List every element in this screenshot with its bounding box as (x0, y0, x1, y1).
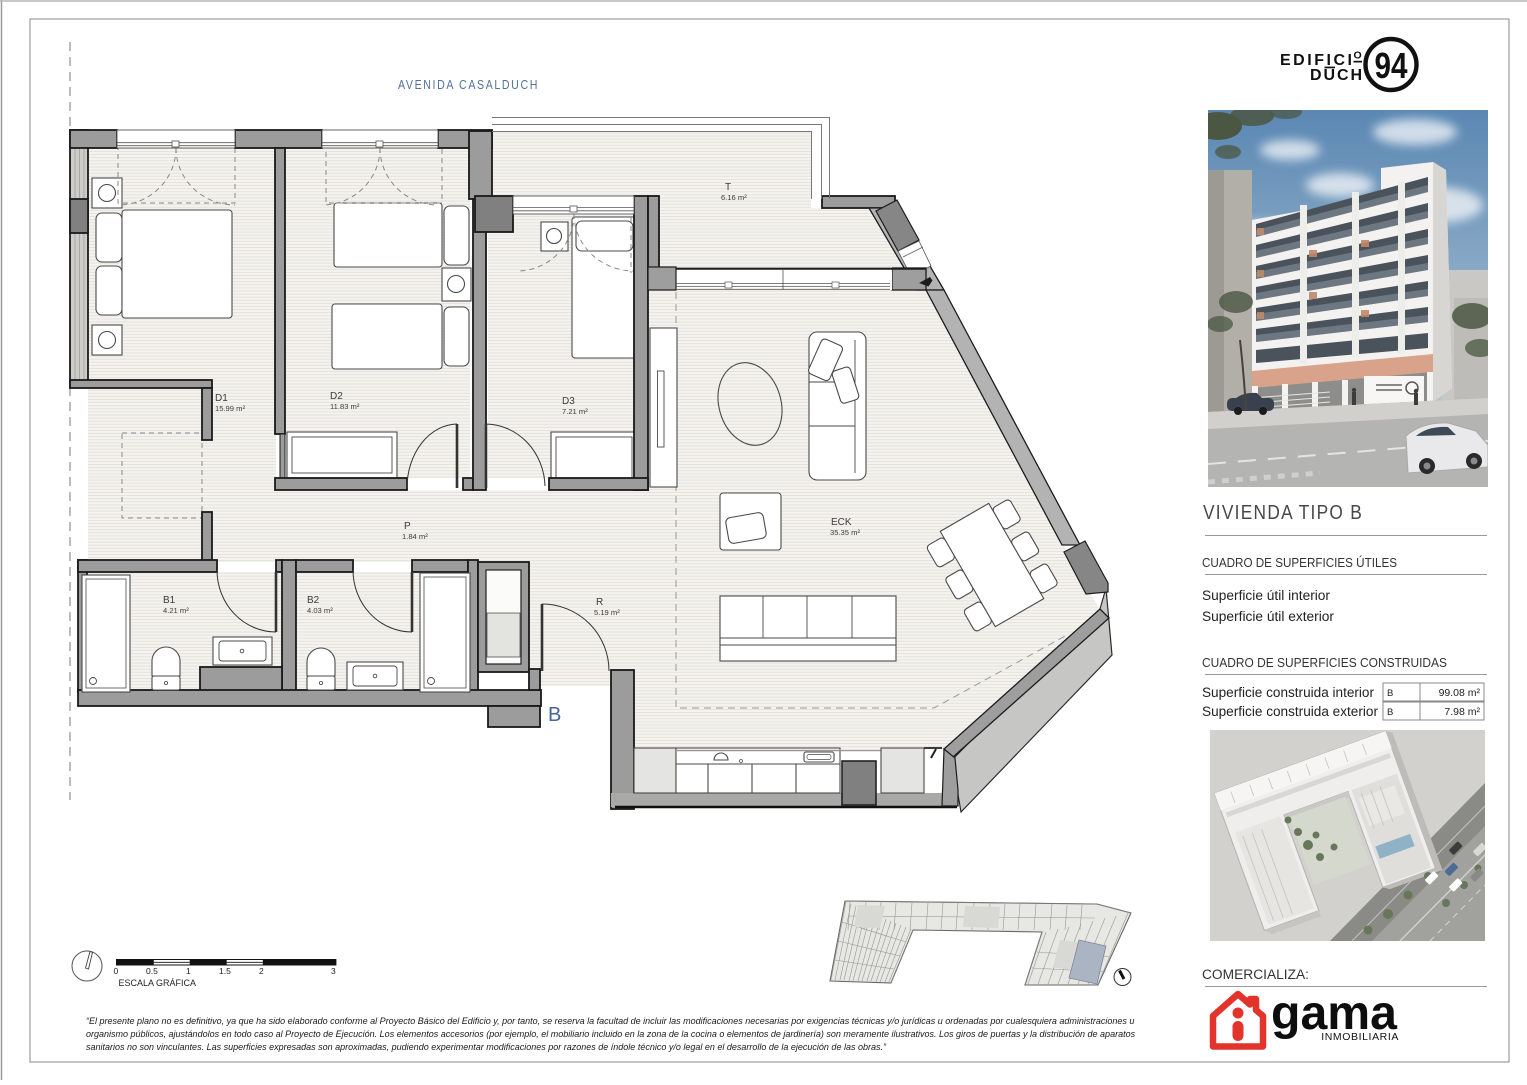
svg-text:INMOBILIARIA: INMOBILIARIA (1321, 1031, 1399, 1043)
svg-text:Superficie construida exterior: Superficie construida exterior (1202, 704, 1378, 719)
svg-text:11.83 m²: 11.83 m² (330, 402, 360, 411)
svg-text:B: B (548, 704, 561, 726)
svg-text:94: 94 (1375, 45, 1408, 86)
svg-text:7.21 m²: 7.21 m² (562, 407, 588, 416)
svg-text:Superficie construida interior: Superficie construida interior (1202, 685, 1374, 700)
svg-text:1.84 m²: 1.84 m² (402, 532, 428, 541)
svg-text:VIVIENDA TIPO B: VIVIENDA TIPO B (1203, 501, 1363, 524)
svg-text:1.5: 1.5 (219, 966, 231, 976)
svg-text:B2: B2 (307, 595, 320, 606)
svg-text:B1: B1 (163, 595, 176, 606)
svg-text:ESCALA GRÁFICA: ESCALA GRÁFICA (119, 978, 197, 988)
svg-text:15.99 m²: 15.99 m² (215, 404, 245, 413)
svg-text:CUADRO DE SUPERFICIES CONSTRUI: CUADRO DE SUPERFICIES CONSTRUIDAS (1202, 655, 1447, 670)
svg-text:CUADRO DE SUPERFICIES ÚTILES: CUADRO DE SUPERFICIES ÚTILES (1202, 555, 1397, 570)
svg-text:“El presente plano no es defin: “El presente plano no es definitivo, ya … (86, 1016, 1134, 1026)
svg-text:4.03 m²: 4.03 m² (307, 606, 333, 615)
svg-text:O: O (1354, 50, 1362, 62)
svg-text:3: 3 (331, 966, 336, 976)
svg-text:P: P (404, 521, 411, 532)
svg-text:AVENIDA CASALDUCH: AVENIDA CASALDUCH (398, 78, 539, 92)
svg-text:1: 1 (186, 966, 191, 976)
svg-text:0.5: 0.5 (146, 966, 158, 976)
svg-text:Superficie útil interior: Superficie útil interior (1202, 588, 1331, 603)
svg-text:R: R (596, 597, 603, 608)
svg-text:COMERCIALIZA:: COMERCIALIZA: (1202, 967, 1309, 982)
svg-text:4.21 m²: 4.21 m² (163, 606, 189, 615)
svg-text:0: 0 (114, 966, 119, 976)
svg-text:T: T (725, 182, 731, 193)
svg-text:D2: D2 (330, 391, 343, 402)
svg-text:organismo públicos, ajustándol: organismo públicos, ajustándolos en todo… (86, 1029, 1136, 1039)
svg-text:2: 2 (259, 966, 264, 976)
svg-text:7.98 m²: 7.98 m² (1444, 706, 1480, 718)
svg-text:5.19 m²: 5.19 m² (594, 608, 620, 617)
svg-text:ECK: ECK (831, 517, 852, 528)
svg-text:35.35 m²: 35.35 m² (830, 528, 860, 537)
svg-text:6.16 m²: 6.16 m² (721, 193, 747, 202)
svg-text:sanitarios no son vinculantes.: sanitarios no son vinculantes. Las super… (86, 1042, 887, 1052)
svg-text:D1: D1 (215, 393, 228, 404)
svg-text:99.08 m²: 99.08 m² (1439, 687, 1481, 699)
svg-text:B: B (1387, 688, 1393, 699)
svg-text:DUCH: DUCH (1310, 67, 1362, 84)
svg-text:B: B (1387, 707, 1393, 718)
svg-text:Superficie útil exterior: Superficie útil exterior (1202, 609, 1335, 624)
svg-text:D3: D3 (562, 396, 575, 407)
